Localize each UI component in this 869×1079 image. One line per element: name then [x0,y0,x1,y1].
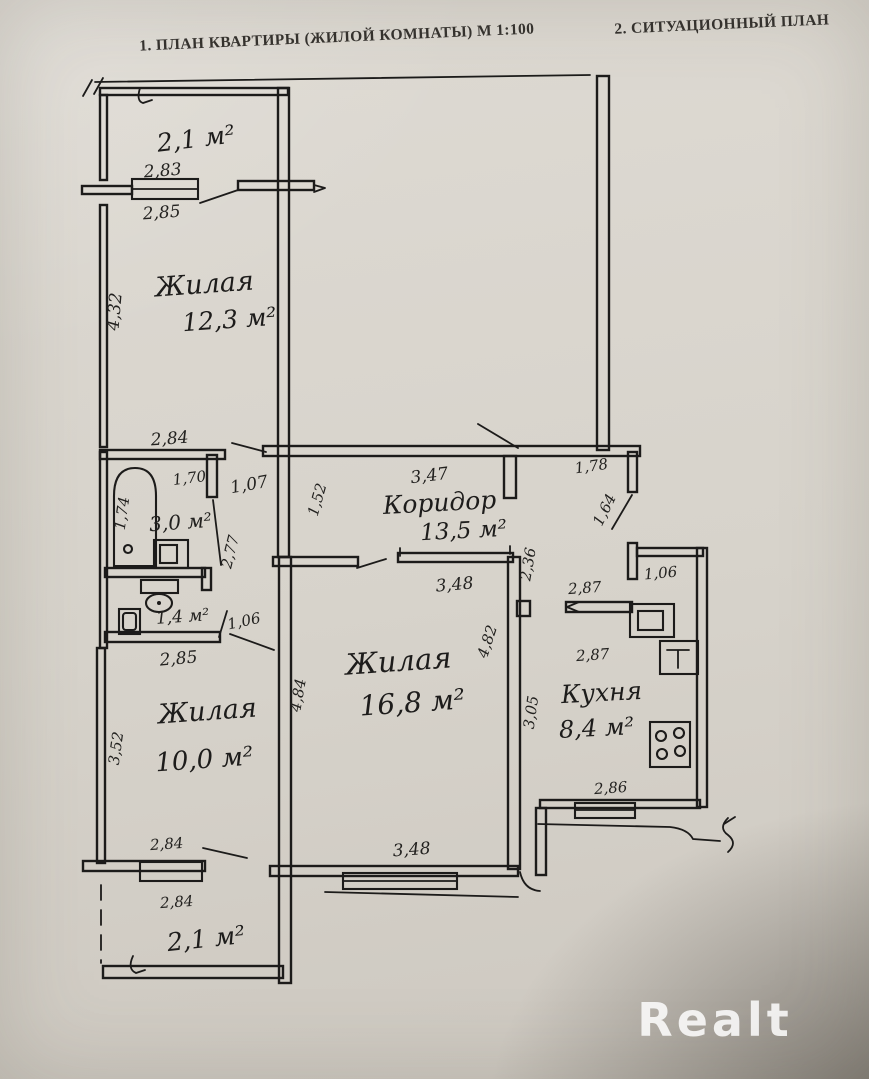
dim-287-b: 2,87 [574,645,610,665]
dim-348-top: 3,48 [435,573,475,596]
toilet-area-label: 1,4 м² [155,605,210,629]
washer-icon [119,609,140,634]
dim-174: 1,74 [111,496,133,532]
stove-icon [650,722,690,767]
window-icon-balcony-top [132,179,198,199]
dim-352: 3,52 [105,731,127,767]
room3-area-label: 10,0 м² [154,742,254,779]
room2-label: Жилая [342,640,452,681]
dim-178: 1,78 [574,455,610,477]
dim-432: 4,32 [103,292,126,332]
vent-shaft-icon [630,604,674,637]
dim-287-a: 2,87 [566,578,602,598]
bathroom-area-label: 3,0 м² [148,508,212,536]
kitchen-area-label: 8,4 м² [558,712,635,744]
corridor-area-label: 13,5 м² [420,516,508,547]
balcony-bottom-area-label: 2,1 м² [165,920,247,957]
dim-170: 1,70 [172,467,208,489]
dim-284-low: 2,84 [158,892,194,912]
dim-106-toilet: 1,06 [226,609,263,634]
balcony-top-area-label: 2,1 м² [154,119,236,157]
door-swing-lines [200,185,632,858]
dim-277: 2,77 [217,533,243,571]
corridor-label: Коридор [381,485,497,520]
dim-236: 2,36 [516,546,540,583]
realt-watermark: Realt [637,993,792,1047]
plan-title-right: 2. СИТУАЦИОННЫЙ ПЛАН [614,11,830,37]
dim-347: 3,47 [409,464,449,488]
dim-152: 1,52 [304,481,331,518]
dim-106-niche: 1,06 [643,563,678,584]
window-icon-room3 [140,862,202,881]
dim-305: 3,05 [520,695,542,731]
dim-283: 2,83 [142,160,182,183]
plan-title-left: 1. ПЛАН КВАРТИРЫ (ЖИЛОЙ КОМНАТЫ) М 1:100 [139,20,535,54]
floor-plan-drawing: 1. ПЛАН КВАРТИРЫ (ЖИЛОЙ КОМНАТЫ) М 1:100… [0,0,869,1079]
room2-area-label: 16,8 м² [358,682,466,722]
dim-107: 1,07 [229,472,270,498]
dim-286: 2,86 [592,778,628,798]
kitchen-label: Кухня [559,676,642,709]
scanned-floor-plan-page: 1. ПЛАН КВАРТИРЫ (ЖИЛОЙ КОМНАТЫ) М 1:100… [0,0,869,1079]
dim-348-bottom: 3,48 [392,839,431,862]
dim-285-top: 2,85 [141,202,181,225]
sink-icon [154,540,188,568]
dim-284-top: 2,84 [149,428,189,451]
room1-label: Жилая [152,266,255,304]
dim-284-mid: 2,84 [148,834,184,854]
dim-484: 4,84 [286,677,310,714]
dim-285-bottom: 2,85 [158,647,198,670]
window-icon-kitchen [575,803,635,818]
dim-482: 4,82 [473,623,501,661]
room3-label: Жилая [155,693,258,731]
kitchen-sink-icon [660,641,698,674]
room1-area-label: 12,3 м² [181,302,277,338]
